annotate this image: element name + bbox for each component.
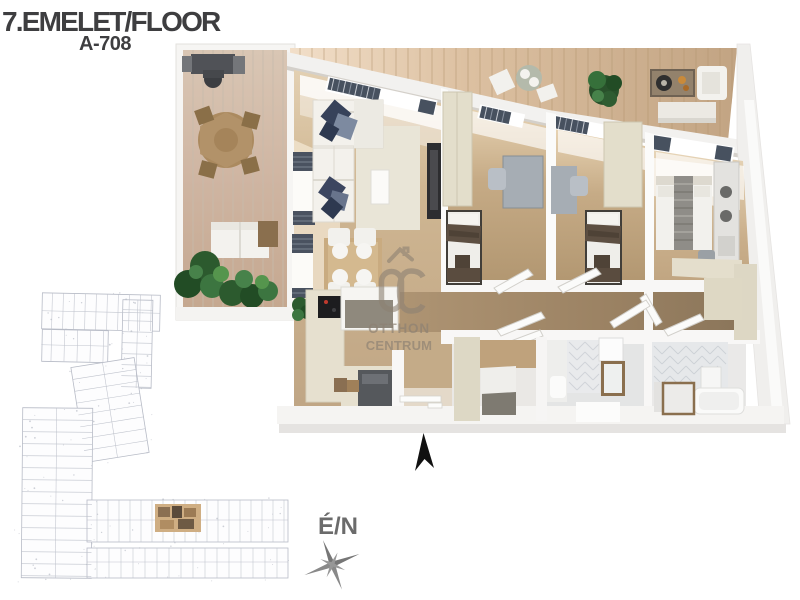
svg-text:É/N: É/N [318, 512, 358, 540]
svg-text:OTTHON: OTTHON [368, 321, 430, 336]
svg-text:CENTRUM: CENTRUM [366, 338, 432, 353]
